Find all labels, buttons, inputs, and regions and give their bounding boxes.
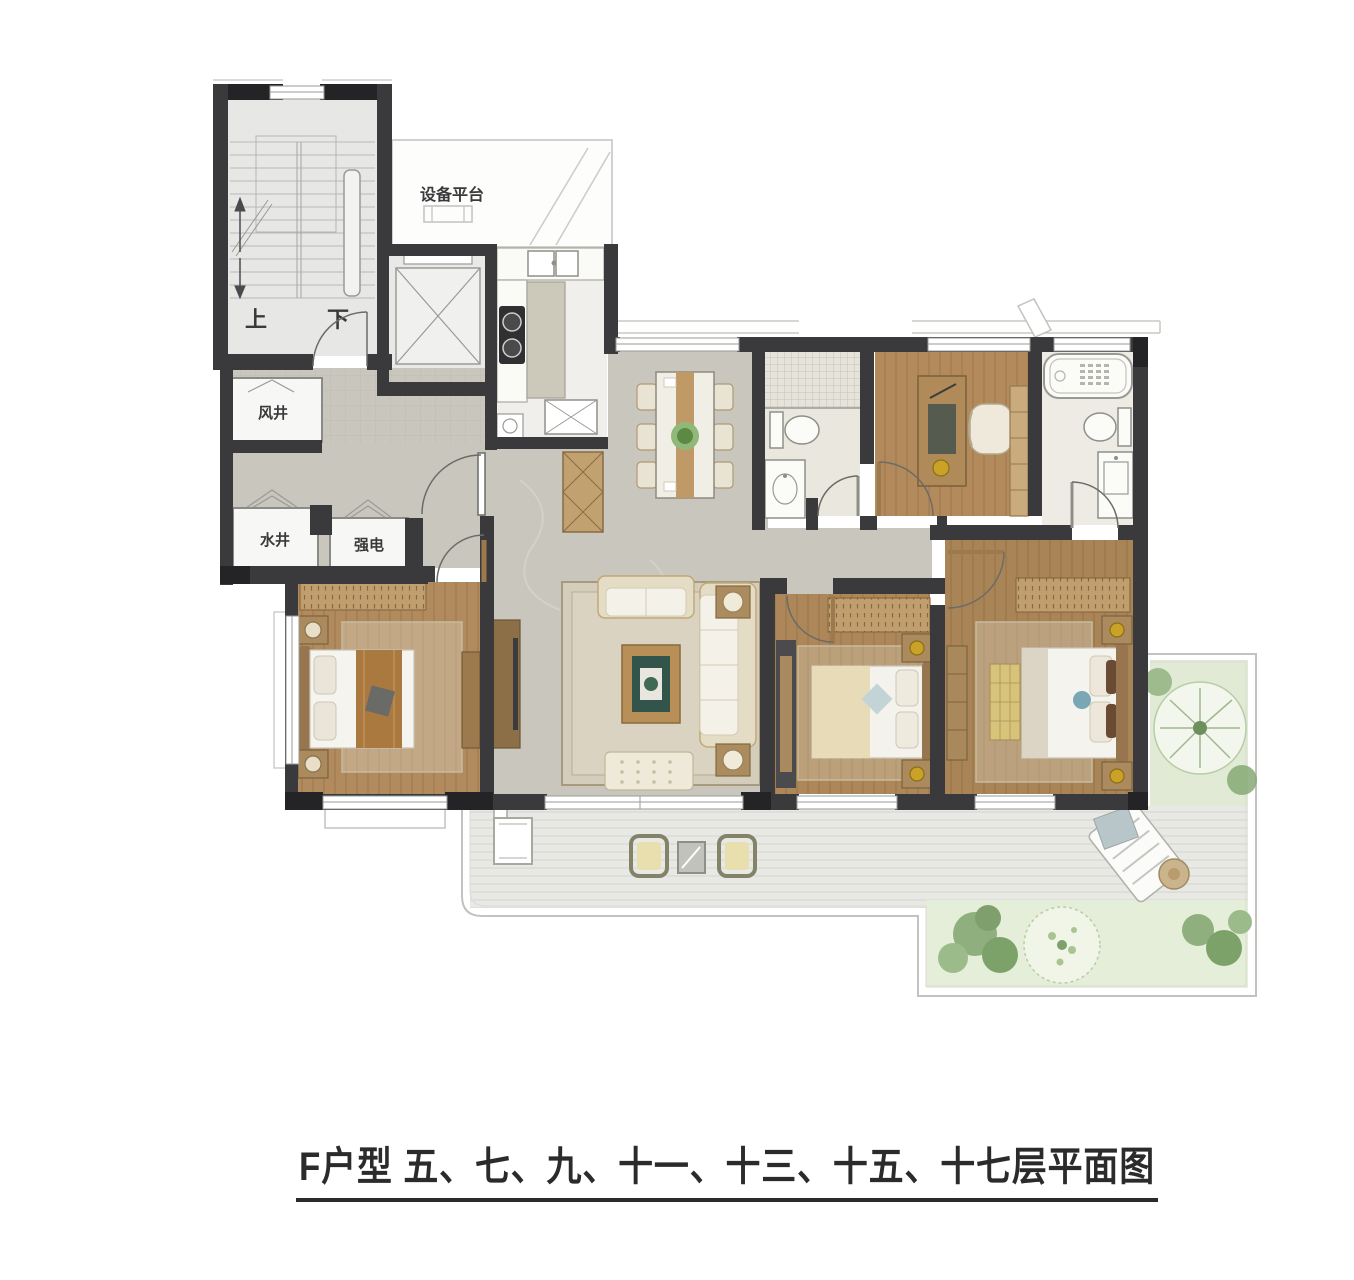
kitchen-island	[527, 282, 565, 398]
desk-chair-icon	[969, 404, 1013, 454]
ottoman-icon	[605, 752, 693, 790]
window-bedroom-middle-south	[797, 796, 897, 809]
equipment-platform-label: 设备平台	[420, 185, 484, 204]
cabinet-icon	[947, 646, 967, 760]
electric-meter-label: 强电	[354, 536, 384, 554]
tv-console-icon	[492, 620, 520, 748]
floor-plan: 上 下	[0, 0, 1354, 1280]
dining-room	[637, 372, 733, 498]
bench-icon	[462, 652, 480, 748]
small-appliance-icon	[497, 414, 523, 438]
flue-mark	[1018, 299, 1051, 337]
window-stair-top	[270, 86, 324, 99]
fridge-icon	[545, 400, 597, 434]
dining-table-icon	[656, 372, 714, 498]
caption-underline	[296, 1198, 1158, 1202]
west-window-sill	[274, 612, 286, 768]
coffee-table-icon	[622, 645, 680, 723]
bench-icon	[990, 664, 1020, 740]
vanity-sink-icon	[765, 460, 805, 518]
caption: F户型 五、七、九、十一、十三、十五、十七层平面图	[296, 1145, 1158, 1202]
window-bedroom-left-south	[323, 796, 447, 809]
foyer	[563, 452, 603, 532]
vanity-sink-icon	[1098, 452, 1133, 518]
bed-icon	[298, 646, 414, 752]
air-shaft-label: 风井	[258, 404, 288, 422]
bed-icon	[1022, 644, 1128, 762]
desk-icon	[918, 376, 966, 486]
water-shaft-label: 水井	[260, 531, 290, 549]
shoe-cabinet-icon	[563, 452, 603, 532]
bed-icon	[812, 662, 932, 762]
window-dining-north	[616, 338, 739, 351]
window-bedroom-master-south	[975, 796, 1055, 809]
bay-window-sill	[325, 808, 445, 828]
bathtub-icon	[1044, 354, 1132, 398]
terrace-chairs	[631, 836, 755, 876]
loveseat-icon	[598, 576, 694, 618]
window-study-north	[928, 338, 1030, 351]
wardrobe-icon	[1010, 386, 1028, 516]
kitchen-sink-icon	[528, 251, 578, 276]
desk-lamp-icon	[933, 460, 949, 476]
window-bath-master-north	[1054, 338, 1130, 351]
floor-plan-caption: F户型 五、七、九、十一、十三、十五、十七层平面图	[299, 1145, 1155, 1189]
dresser-icon	[776, 640, 796, 788]
window-bedroom-left-west	[286, 616, 299, 764]
stair-rail	[344, 170, 360, 296]
stair-up-label: 上	[245, 307, 267, 332]
sliding-door-living-south	[545, 796, 743, 809]
air-shaft: 风井	[228, 378, 322, 442]
floor-plan-page: 上 下	[0, 0, 1354, 1280]
stove-icon	[499, 306, 525, 364]
